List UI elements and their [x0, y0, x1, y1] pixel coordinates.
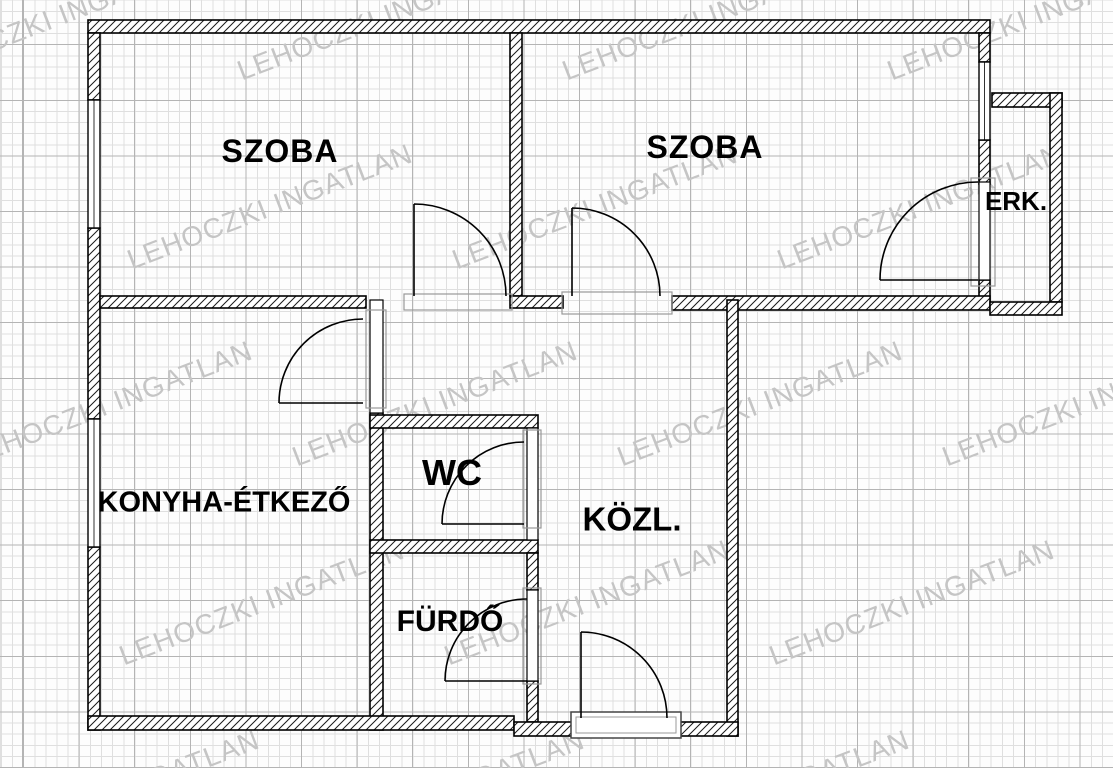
opening-bath-door [527, 590, 538, 681]
wall-wc-bottom [370, 540, 538, 553]
floor-plan: LEHOCZKI INGATLAN LEHOCZKI INGATLAN LEHO… [0, 0, 1113, 768]
room-label-furdo: FÜRDŐ [397, 607, 504, 637]
wall-bath-right-segment [527, 553, 538, 590]
wall-top [88, 20, 990, 33]
frame-room1-door [404, 294, 512, 310]
wall-right-segment [979, 33, 990, 62]
wall-wc-top [370, 415, 538, 428]
walls-hatched [88, 20, 1062, 736]
doors [279, 182, 978, 718]
room-label-kozl: KÖZL. [583, 503, 682, 536]
opening-kitchen-door [370, 300, 383, 413]
wall-interior-horizontal [672, 296, 990, 310]
wall-bottom [88, 716, 514, 730]
wall-right-segment [979, 140, 990, 184]
wall-between-rooms [510, 33, 522, 296]
wall-kitchen-divider [370, 413, 383, 730]
entry-threshold [571, 712, 681, 738]
wall-balcony-bottom [990, 302, 1062, 315]
room-label-szoba-2: SZOBA [647, 131, 764, 163]
entry-threshold-outer [571, 712, 681, 738]
door-balcony [880, 182, 978, 280]
wall-balcony-right [1050, 93, 1062, 302]
wall-interior-horizontal [100, 296, 366, 308]
room-label-erkely: ERK. [985, 188, 1047, 214]
door-kitchen [279, 319, 363, 403]
floor-plan-drawing [0, 0, 1113, 768]
room-label-wc: WC [422, 455, 482, 491]
wall-interior-horizontal [510, 296, 563, 308]
opening-wc-door [527, 428, 538, 540]
wall-left-segment [88, 33, 100, 100]
door-room2 [572, 208, 660, 296]
wall-bath-right-segment [527, 681, 538, 722]
frame-room2-door [562, 292, 672, 314]
wall-left-segment [88, 547, 100, 730]
wall-left-segment [88, 228, 100, 419]
door-entry [581, 632, 667, 718]
room-label-konyha: KONYHA-ÉTKEZŐ [98, 489, 351, 518]
wall-hall-right [727, 300, 738, 736]
door-room1 [414, 204, 506, 296]
room-label-szoba-1: SZOBA [222, 135, 339, 167]
